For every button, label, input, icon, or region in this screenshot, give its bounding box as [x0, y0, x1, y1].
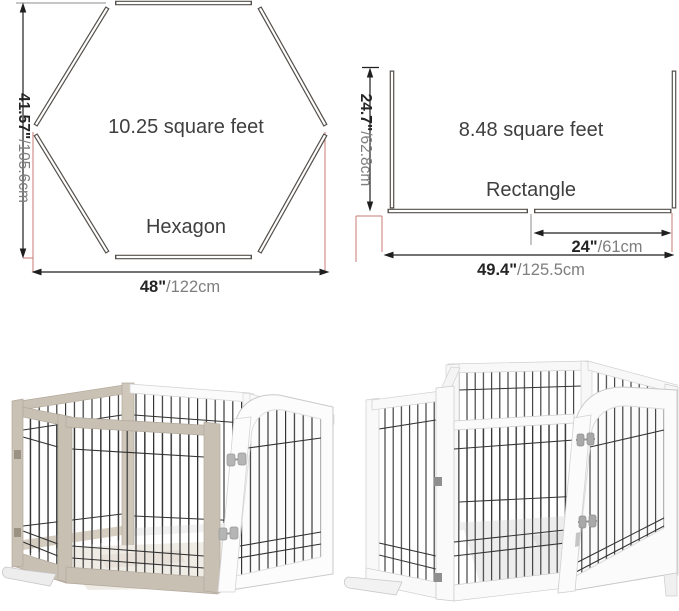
arrow-down-icon: [367, 202, 373, 212]
left-side-panel: [366, 367, 460, 601]
hexagon-height-dimension: 41.57"/105.6cm: [15, 3, 32, 259]
gate-door-panel: [218, 395, 333, 592]
rectangle-diagram: 24.7"/62.8cm 24"/61cm 49.4"/125.5cm 8.48…: [356, 68, 675, 280]
hexagon-width-dimension: 48"/122cm: [32, 269, 330, 296]
arrow-right-icon: [662, 230, 672, 237]
arrow-left-icon: [384, 252, 394, 259]
hexagon-area-label: 10.25 square feet: [108, 116, 264, 138]
product-dimension-infographic: 41.57"/105.6cm 48"/122cm 10.25 square fe…: [0, 0, 679, 611]
hexagon-height-label: 41.57"/105.6cm: [15, 93, 32, 203]
hexagon-width-label: 48"/122cm: [140, 278, 220, 296]
gate-door-panel: [558, 387, 677, 593]
arrow-up-icon: [20, 3, 27, 13]
front-center-panel: [58, 414, 220, 594]
arrow-up-icon: [367, 68, 373, 78]
rectangle-height-dimension: 24.7"/62.8cm: [357, 68, 379, 212]
front-panel: [454, 414, 574, 601]
rectangle-width-label: 49.4"/125.5cm: [477, 261, 585, 279]
dimension-diagrams: 41.57"/105.6cm 48"/122cm 10.25 square fe…: [0, 0, 679, 330]
rectangle-pen-photo: [340, 330, 679, 611]
panel-hinge: [14, 528, 21, 537]
hexagon-shape-label: Hexagon: [146, 216, 226, 238]
rectangle-shape-label: Rectangle: [486, 179, 576, 201]
arrow-right-icon: [665, 252, 675, 259]
rectangle-height-label: 24.7"/62.8cm: [357, 94, 374, 187]
arrow-left-icon: [534, 230, 544, 237]
red-extension-lines: [23, 132, 325, 272]
rectangle-door-label: 24"/61cm: [571, 238, 642, 256]
hexagon-pen-photo: [0, 330, 340, 611]
panel-hinge: [14, 450, 21, 459]
panel-hinge: [434, 477, 442, 486]
rectangle-area-label: 8.48 square feet: [459, 119, 604, 141]
support-foot: [664, 573, 677, 596]
arrow-down-icon: [20, 249, 27, 259]
panel-hinge: [434, 573, 442, 582]
rectangle-door-dimension: 24"/61cm: [534, 230, 672, 256]
hexagon-diagram: 41.57"/105.6cm 48"/122cm 10.25 square fe…: [15, 3, 330, 297]
